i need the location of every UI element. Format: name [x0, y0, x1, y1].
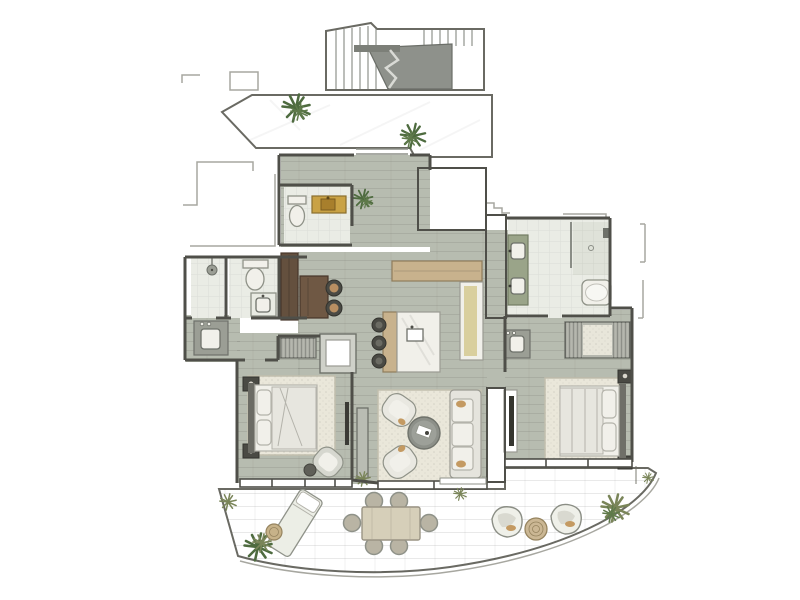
throw-pillow — [456, 461, 466, 468]
shower-tile-grid — [573, 222, 608, 275]
upper-terrace-floor — [222, 95, 492, 157]
vanity-nook-fixtures — [194, 321, 228, 355]
lounge-chair — [551, 504, 581, 534]
basin-bowl — [511, 278, 525, 294]
basin-bowl — [511, 243, 525, 259]
throw-pillow — [456, 401, 466, 408]
round-table — [525, 518, 547, 540]
side-table — [266, 524, 282, 540]
pillow — [602, 423, 616, 451]
headboard — [619, 384, 626, 458]
faucet-icon — [327, 197, 330, 200]
stairwell — [326, 23, 484, 90]
coffee-table — [408, 417, 440, 449]
vanity-sink — [321, 199, 335, 210]
desk — [300, 276, 328, 318]
pillow — [257, 420, 271, 445]
headboard — [248, 383, 255, 453]
counter-accent-band — [464, 286, 477, 356]
slider-panel — [440, 478, 486, 484]
faucet-icon — [509, 285, 512, 288]
master-bedroom-window — [505, 459, 632, 467]
ottoman — [304, 464, 316, 476]
bathtub — [582, 280, 611, 305]
faucet-icon — [509, 250, 512, 253]
stair-handrail — [354, 45, 400, 52]
faucet-icon — [262, 295, 265, 298]
dining-chair — [344, 515, 361, 532]
terrace-plant-icon — [283, 95, 426, 149]
appliance-door — [326, 340, 350, 366]
faucet-icon — [207, 322, 211, 326]
lounge-chair — [492, 507, 522, 537]
walk-in-wardrobe — [565, 322, 630, 358]
pillow — [602, 390, 616, 418]
lamp-icon — [623, 374, 628, 379]
toilet-icon — [246, 268, 264, 290]
faucet-icon — [411, 326, 414, 329]
basin-cabinet — [504, 330, 530, 358]
thick-wall-living-bedroom — [487, 388, 505, 482]
basin-bowl — [256, 298, 270, 312]
kitchen-island — [372, 312, 440, 372]
island-sink — [407, 329, 423, 341]
pillow — [257, 390, 271, 415]
tv-icon — [345, 402, 349, 445]
faucet-icon — [200, 322, 204, 326]
toilet-tank — [288, 196, 306, 204]
sofa — [450, 390, 481, 478]
dining-chair — [421, 515, 438, 532]
toilet-tank — [243, 260, 268, 268]
basin-bowl — [201, 329, 220, 349]
media-console — [357, 408, 368, 478]
floor-plan-canvas — [0, 0, 800, 600]
tv-icon — [509, 396, 514, 446]
sofa-cushion — [452, 423, 473, 446]
toilet-icon — [290, 206, 305, 227]
upper-terrace — [222, 95, 492, 160]
shower-fitting — [603, 228, 609, 238]
